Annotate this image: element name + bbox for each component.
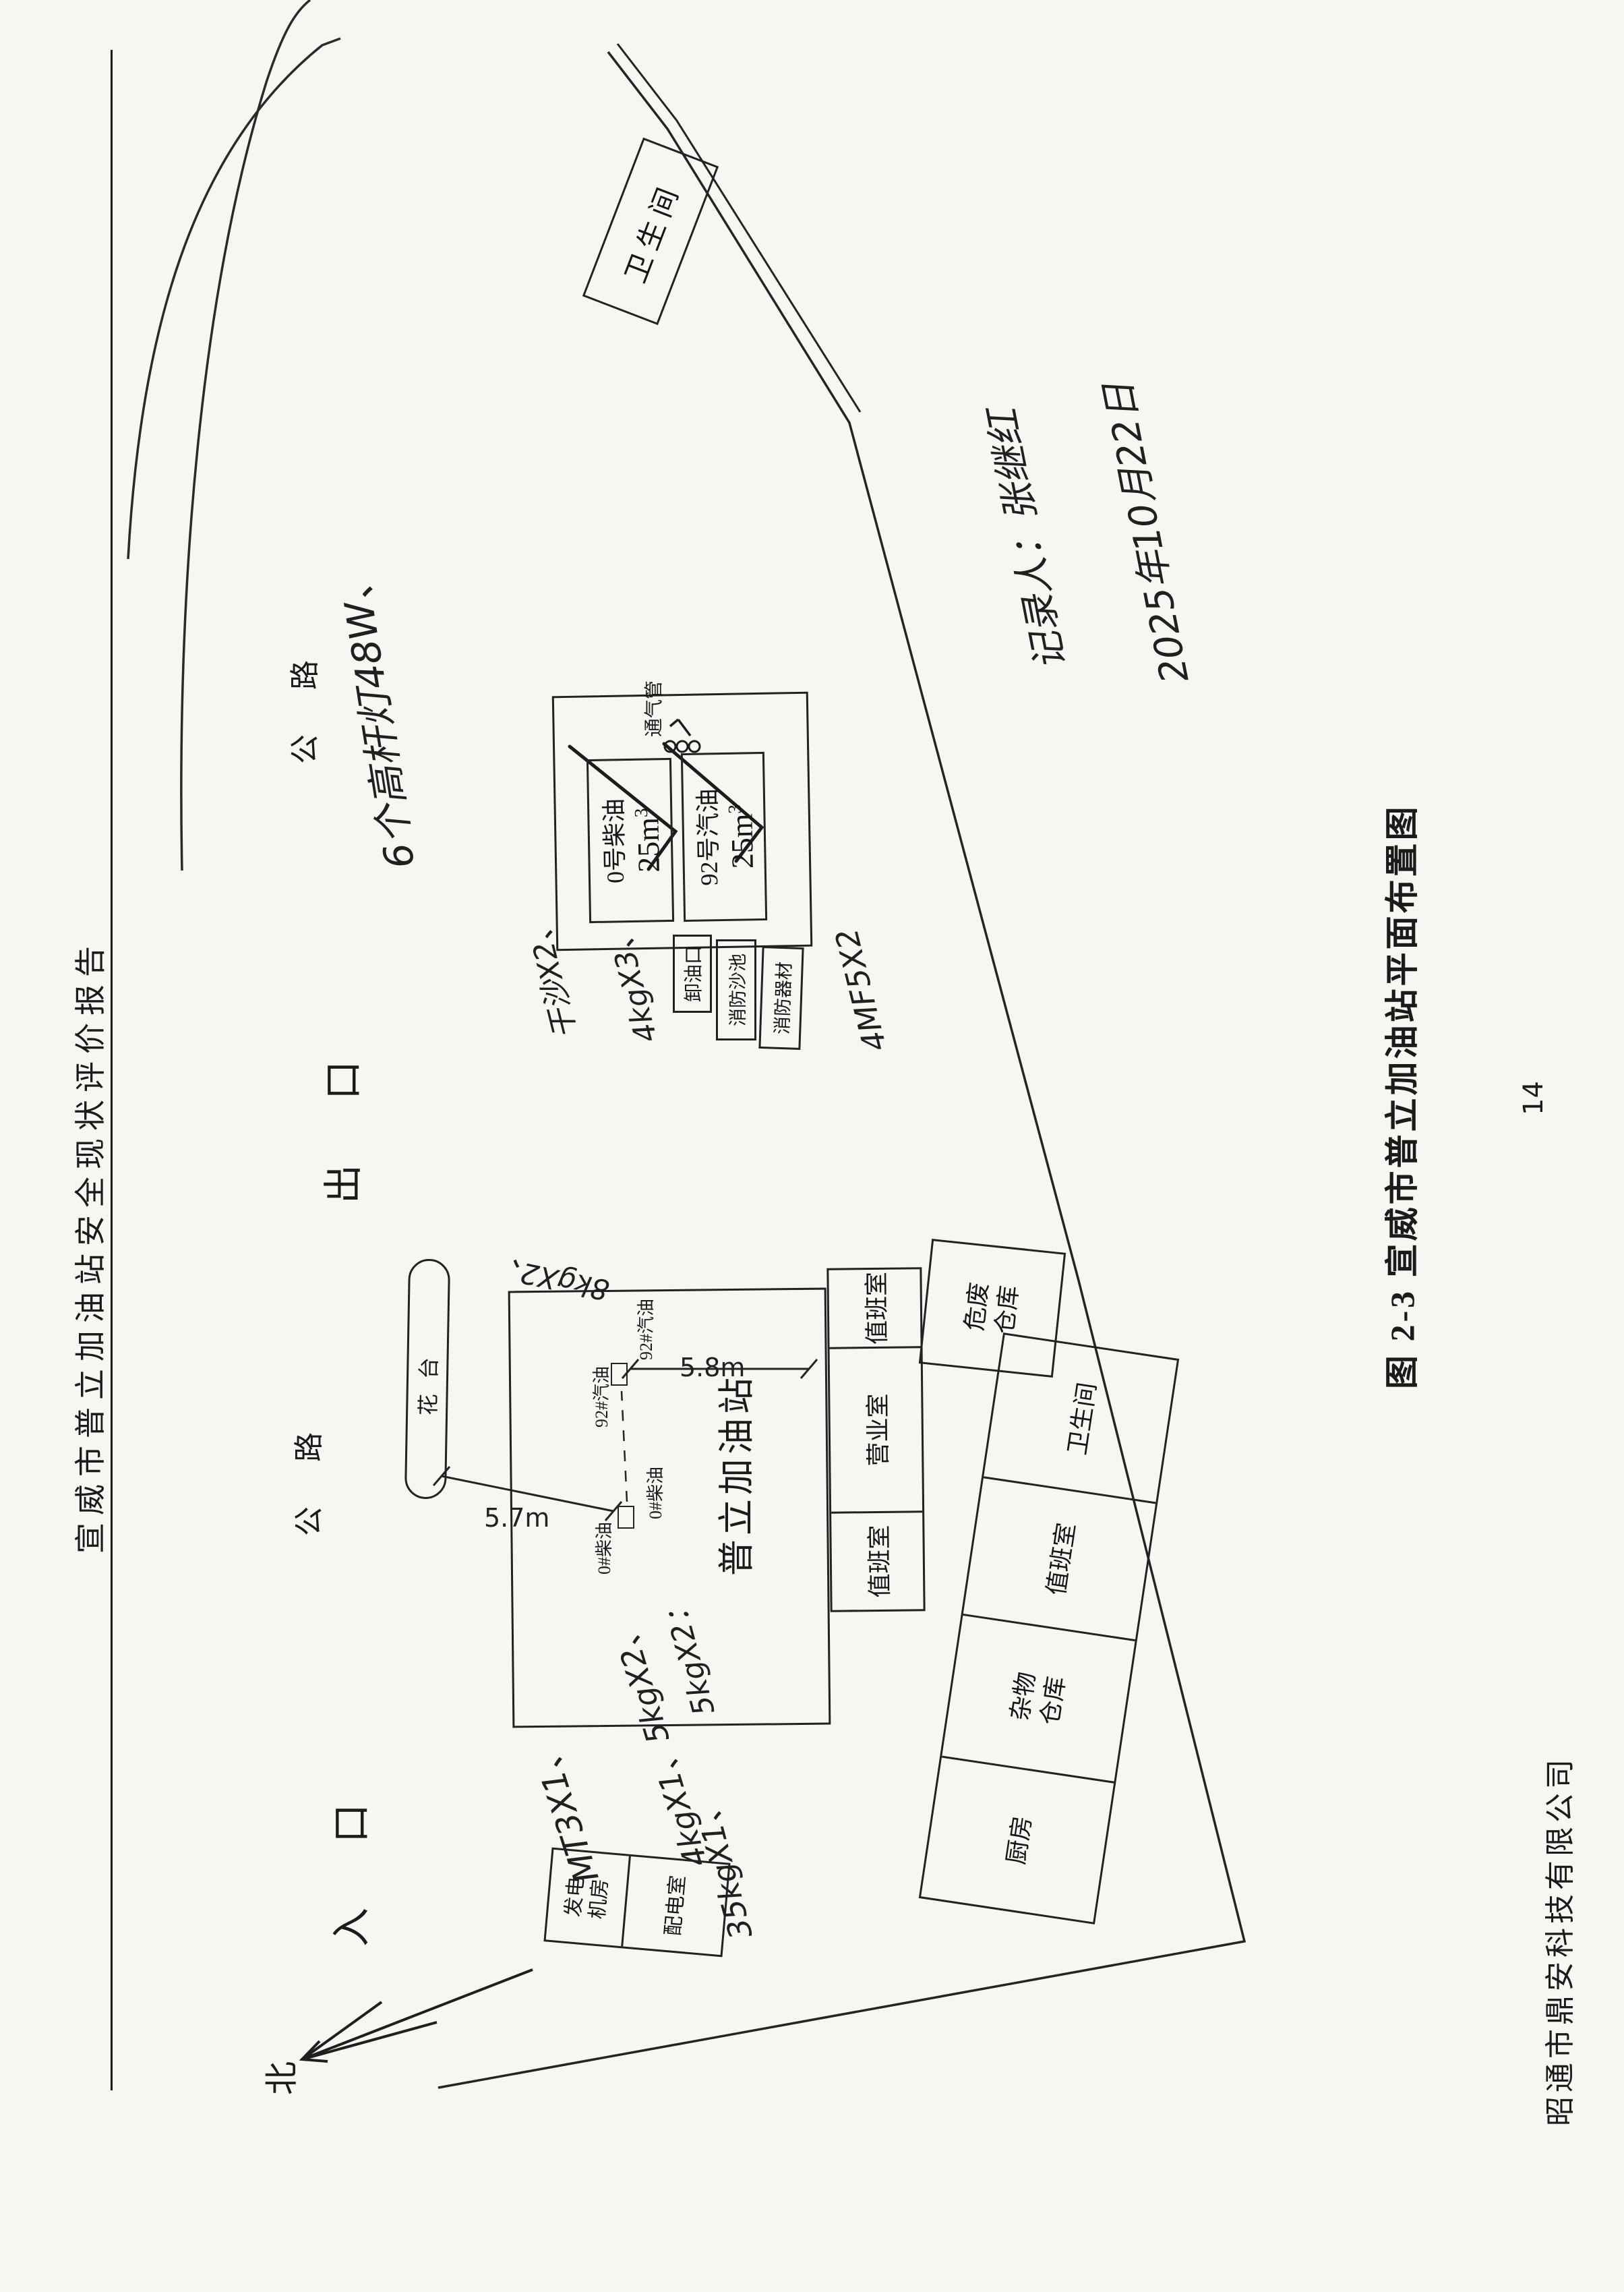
page-number: 14 bbox=[1518, 1081, 1549, 1115]
room-generator-label-2: 机房 bbox=[586, 1878, 613, 1920]
station-name: 普立加油站 bbox=[706, 1374, 760, 1576]
tank-petrol-92-name: 92号汽油 bbox=[688, 788, 725, 886]
tank-petrol-92-volume: 25m3 bbox=[723, 804, 760, 869]
canopy-room-row: 值班室 营业室 值班室 bbox=[826, 1267, 925, 1612]
room-sundry-label-2: 仓库 bbox=[1035, 1674, 1072, 1727]
room-annex-duty: 值班室 bbox=[963, 1478, 1155, 1641]
flower-bed-label: 花台 bbox=[411, 1343, 444, 1416]
flower-bed: 花台 bbox=[404, 1258, 450, 1499]
north-label: 北 bbox=[255, 2061, 303, 2095]
room-kitchen: 厨房 bbox=[921, 1758, 1114, 1922]
toilet-top-label: 卫生间 bbox=[613, 175, 689, 288]
room-kitchen-label: 厨房 bbox=[996, 1813, 1038, 1867]
room-duty-right: 值班室 bbox=[829, 1269, 920, 1349]
unloading-point-label: 卸油口 bbox=[679, 945, 706, 1002]
dispenser-92 bbox=[611, 1363, 628, 1386]
exit-label: 出口 bbox=[311, 996, 368, 1204]
room-annex-toilet: 卫生间 bbox=[984, 1335, 1177, 1504]
footer-company: 昭通市鼎安科技有限公司 bbox=[1536, 1755, 1579, 2126]
tank-petrol-92: 92号汽油 25m3 bbox=[681, 752, 767, 922]
figure-caption: 图 2-3 宣威市普立加油站平面布置图 bbox=[1375, 804, 1424, 1389]
north-arrow-ray-long bbox=[302, 1970, 533, 2059]
tank-diesel-0-name: 0号柴油 bbox=[594, 798, 630, 884]
fire-equipment-box: 消防器材 bbox=[758, 946, 804, 1050]
road-label-2: 公路 bbox=[284, 1388, 328, 1536]
room-business-label: 营业室 bbox=[858, 1393, 894, 1467]
room-sundry-store: 杂物 仓库 bbox=[942, 1616, 1135, 1784]
north-arrow-ray-short bbox=[302, 2002, 382, 2059]
dispenser-92-label-a: 92#汽油 bbox=[632, 1299, 657, 1360]
room-duty-right-label: 值班室 bbox=[857, 1272, 893, 1345]
room-duty-left: 值班室 bbox=[831, 1512, 923, 1610]
unloading-point: 卸油口 bbox=[673, 935, 712, 1013]
fire-sand-pool: 消防沙池 bbox=[716, 939, 756, 1040]
room-business: 营业室 bbox=[830, 1348, 923, 1513]
entrance-label: 入口 bbox=[320, 1739, 376, 1947]
hazard-waste-label-1: 危废 bbox=[959, 1281, 994, 1332]
room-annex-duty-label: 值班室 bbox=[1037, 1520, 1082, 1597]
room-duty-left-label: 值班室 bbox=[860, 1525, 895, 1598]
landscape-sheet: 宣威市普立加油站安全现状评价报告 bbox=[0, 0, 1624, 2292]
dispenser-0-label-a: 0#柴油 bbox=[642, 1467, 667, 1519]
fire-sand-pool-label: 消防沙池 bbox=[723, 953, 750, 1026]
fire-equipment-label: 消防器材 bbox=[767, 961, 796, 1034]
dispenser-0-label-b: 0#柴油 bbox=[591, 1522, 615, 1575]
road-edge-curve-outer bbox=[128, 38, 340, 559]
road-label-1: 公路 bbox=[280, 616, 324, 764]
room-annex-toilet-label: 卫生间 bbox=[1058, 1380, 1103, 1457]
vent-pipe-label: 通气管 bbox=[639, 680, 666, 737]
scanned-report-page: 宣威市普立加油站安全现状评价报告 bbox=[0, 0, 1624, 2292]
north-arrow-ray-mid bbox=[302, 2022, 437, 2059]
room-power-label: 配电室 bbox=[661, 1875, 690, 1937]
dispenser-92-label-b: 92#汽油 bbox=[588, 1366, 613, 1428]
tank-diesel-0-volume: 25m3 bbox=[630, 808, 667, 873]
dispenser-0 bbox=[618, 1506, 634, 1529]
tank-diesel-0: 0号柴油 25m3 bbox=[587, 758, 674, 923]
hazard-waste-label-2: 仓库 bbox=[990, 1284, 1025, 1335]
